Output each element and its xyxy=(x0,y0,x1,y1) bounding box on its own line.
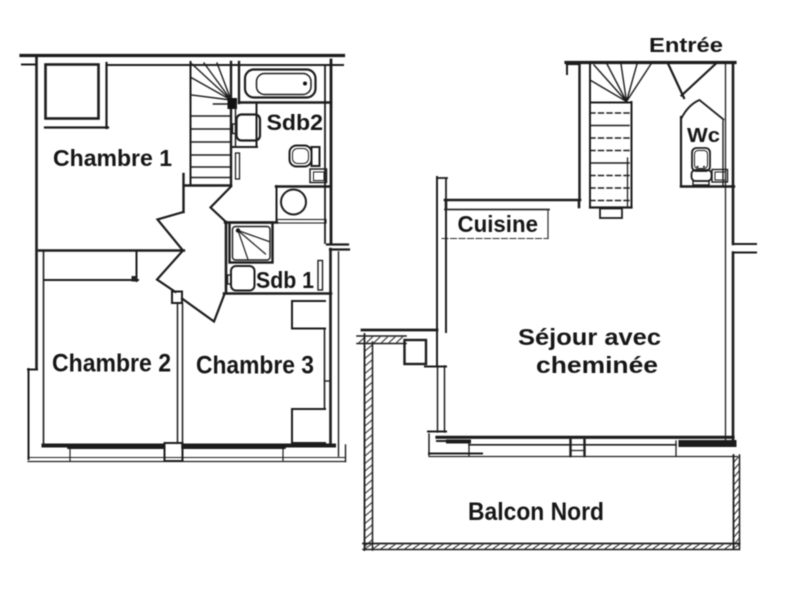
svg-text:Balcon Nord: Balcon Nord xyxy=(468,498,604,526)
svg-text:cheminée: cheminée xyxy=(536,352,658,378)
svg-text:Sdb 1: Sdb 1 xyxy=(256,267,314,293)
svg-text:Sdb2: Sdb2 xyxy=(267,110,324,135)
svg-text:Chambre 2: Chambre 2 xyxy=(52,350,171,378)
svg-text:Cuisine: Cuisine xyxy=(458,211,539,237)
svg-text:Chambre 3: Chambre 3 xyxy=(196,352,314,380)
svg-text:Séjour avec: Séjour avec xyxy=(518,324,661,350)
svg-text:Chambre 1: Chambre 1 xyxy=(53,145,172,171)
svg-text:Wc: Wc xyxy=(687,124,720,147)
svg-text:Entrée: Entrée xyxy=(649,35,723,57)
